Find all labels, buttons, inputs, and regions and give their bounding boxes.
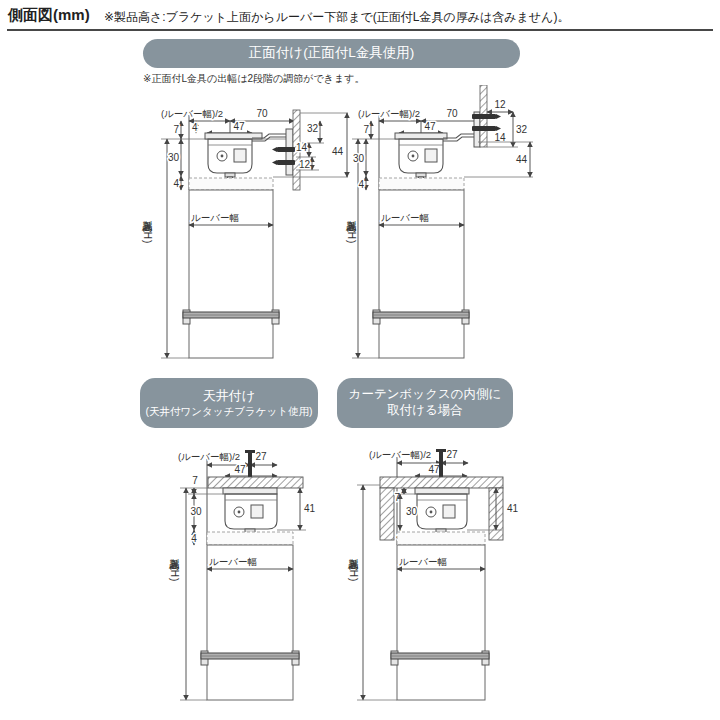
dimension-lines-right: 41 bbox=[277, 488, 316, 530]
dim-7-label: 7 bbox=[394, 492, 400, 503]
dim-32-label: 32 bbox=[307, 123, 319, 134]
product-height-label-4: 製品高さ(H) bbox=[346, 550, 360, 582]
banner-curtain-box: カーテンボックスの内側に 取付ける場合 bbox=[337, 378, 513, 428]
dim-7-label: 7 bbox=[363, 124, 369, 135]
dim-47-label: 47 bbox=[233, 121, 245, 132]
louver-width-label: ルーバー幅 bbox=[191, 212, 239, 223]
dim-30-label: 30 bbox=[406, 506, 418, 517]
dim-louver-half-label: (ルーバー幅)/2 bbox=[161, 108, 223, 119]
product-height-label-1: 製品高さ(H) bbox=[140, 212, 154, 244]
banner-box-line2: 取付ける場合 bbox=[387, 403, 463, 419]
dim-44-label: 44 bbox=[516, 154, 528, 165]
dim-70-label: 70 bbox=[446, 108, 458, 119]
dimension-lines-top: (ルーバー幅)/2 27 47 bbox=[178, 451, 277, 545]
dim-30-label: 30 bbox=[190, 506, 202, 517]
hanger-pin bbox=[225, 173, 235, 177]
dim-louver-half-label: (ルーバー幅)/2 bbox=[178, 451, 240, 462]
dim-14-label: 14 bbox=[296, 142, 308, 153]
dim-14-label: 14 bbox=[494, 132, 506, 143]
dim-47-label: 47 bbox=[424, 121, 436, 132]
dim-7-label: 7 bbox=[192, 475, 198, 486]
front-mount-note: ※正面付L金具の出幅は2段階の調節ができます。 bbox=[143, 72, 364, 86]
louver-panel bbox=[207, 545, 293, 700]
product-height-label-2: 製品高さ(H) bbox=[344, 212, 358, 244]
header-divider bbox=[7, 29, 713, 31]
curtain-box-top-hatch bbox=[380, 477, 503, 488]
dim-louver-half-label: (ルーバー幅)/2 bbox=[369, 449, 431, 460]
banner-ceiling-line2: (天井付ワンタッチブラケット使用) bbox=[146, 405, 313, 418]
hanger-pin bbox=[416, 173, 426, 177]
page-note: ※製品高さ:ブラケット上面からルーバー下部まで(正面付L金具の厚みは含みません)… bbox=[104, 9, 569, 26]
louver-assembly: ルーバー幅 bbox=[391, 532, 489, 700]
louver-width-label: ルーバー幅 bbox=[381, 212, 429, 223]
dim-41-label: 41 bbox=[304, 503, 316, 514]
dim-4-bottom-label: 4 bbox=[358, 179, 364, 190]
banner-front-label: 正面付け(正面付L金具使用) bbox=[249, 45, 414, 62]
dim-32-label: 32 bbox=[516, 124, 528, 135]
louver-assembly: ルーバー幅 bbox=[373, 178, 469, 358]
dim-4-bottom-label: 4 bbox=[191, 533, 197, 544]
louver-width-label: ルーバー幅 bbox=[209, 556, 257, 567]
dim-70-label: 70 bbox=[256, 108, 268, 119]
dimension-lines-right: 44 32 14 12 bbox=[273, 113, 348, 177]
banner-ceiling-line1: 天井付け bbox=[203, 388, 255, 404]
carrier-screw-icon bbox=[430, 511, 433, 514]
carrier-screw-icon bbox=[221, 155, 224, 158]
dim-41-label: 41 bbox=[507, 503, 519, 514]
banner-front-mount: 正面付け(正面付L金具使用) bbox=[143, 39, 520, 68]
dim-27-label: 27 bbox=[255, 451, 267, 462]
ceiling-hatch bbox=[208, 477, 303, 488]
page-title: 側面図(mm) bbox=[8, 6, 90, 25]
dim-4-bottom-label: 4 bbox=[173, 178, 179, 189]
louver-panel bbox=[397, 545, 485, 700]
dim-7-label: 7 bbox=[173, 124, 179, 135]
diagram-ceiling-mount: (ルーバー幅)/2 27 47 7 30 4 41 bbox=[128, 445, 328, 705]
product-height-label-3: 製品高さ(H) bbox=[167, 550, 181, 582]
dim-47-label: 47 bbox=[428, 464, 440, 475]
dim-27-label: 27 bbox=[446, 449, 458, 460]
louver-assembly: ルーバー幅 bbox=[183, 178, 279, 358]
carrier-screw-icon bbox=[412, 155, 415, 158]
diagram-front-mount-b: (ルーバー幅)/2 70 47 7 30 4 12 bbox=[340, 85, 545, 385]
diagram-curtain-box-mount: (ルーバー幅)/2 27 47 7 30 4 41 bbox=[330, 445, 530, 705]
diagram-front-mount-a: (ルーバー幅)/2 70 47 7 4 30 4 bbox=[95, 85, 355, 385]
dim-4-top-label: 4 bbox=[192, 122, 198, 133]
banner-box-line1: カーテンボックスの内側に bbox=[349, 387, 502, 403]
dim-louver-half-label: (ルーバー幅)/2 bbox=[358, 108, 420, 119]
louver-width-label: ルーバー幅 bbox=[399, 556, 447, 567]
dim-12-label: 12 bbox=[299, 159, 311, 170]
dim-30-label: 30 bbox=[168, 152, 180, 163]
carrier-screw-icon bbox=[238, 511, 241, 514]
curtain-box-left-hatch bbox=[380, 488, 394, 540]
louver-assembly: ルーバー幅 bbox=[201, 532, 299, 700]
dim-30-label: 30 bbox=[353, 153, 365, 164]
banner-ceiling-mount: 天井付け (天井付ワンタッチブラケット使用) bbox=[140, 378, 318, 428]
dim-47-label: 47 bbox=[234, 464, 246, 475]
dim-12-label: 12 bbox=[494, 99, 506, 110]
